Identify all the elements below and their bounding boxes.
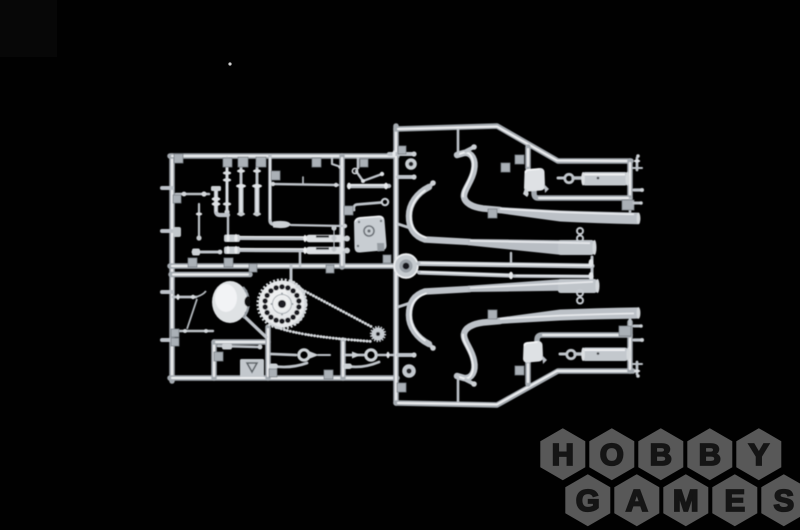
svg-text:G: G [576,483,600,518]
svg-text:S: S [773,483,794,518]
svg-text:B: B [650,437,672,472]
svg-text:Y: Y [748,437,769,472]
svg-text:O: O [600,437,624,472]
svg-text:A: A [626,483,648,518]
svg-text:H: H [552,437,574,472]
svg-text:M: M [673,483,699,518]
svg-text:B: B [699,437,721,472]
svg-text:E: E [724,483,745,518]
